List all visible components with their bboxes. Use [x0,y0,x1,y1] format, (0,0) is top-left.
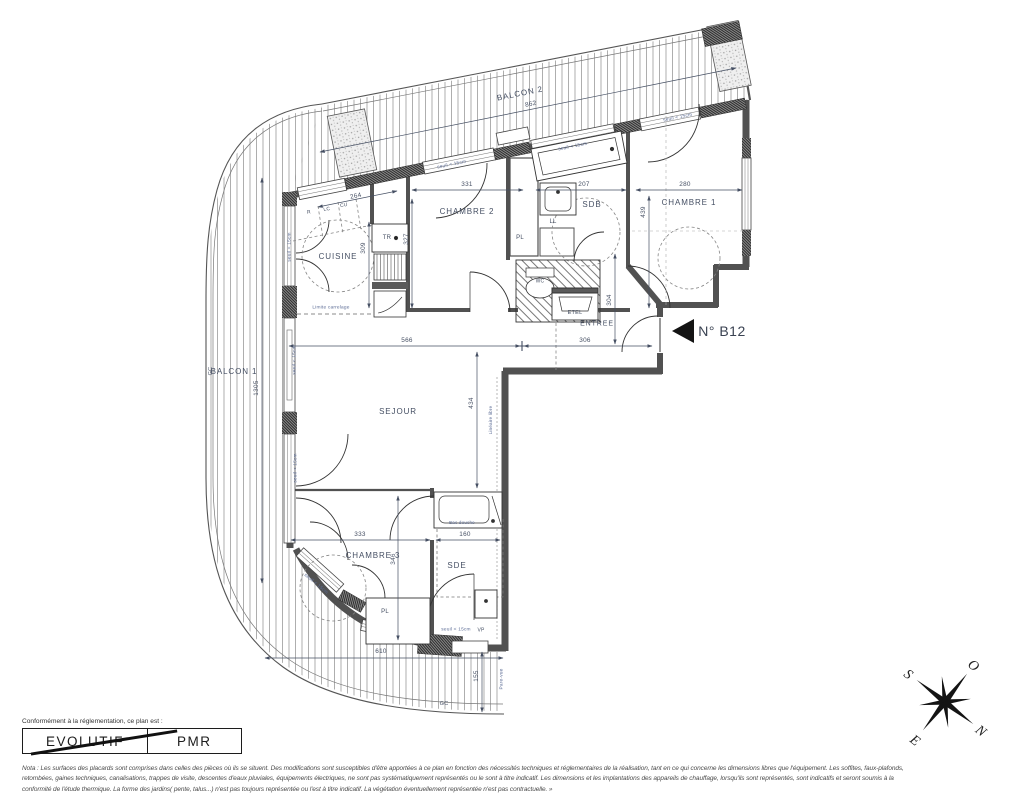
room-label-etel: ETEL [568,311,583,317]
compass-s: S [900,667,915,683]
compass-e: E [906,732,923,750]
nota-line-3: conformité de l'étude thermique. La form… [22,785,1012,795]
room-label-entree: ENTREE [580,321,614,328]
room-label-sdb: SDB [582,201,601,209]
room-label-sde: SDE [447,562,466,570]
dim-155: 155 [474,670,480,682]
room-label-chambre2: CHAMBRE 2 [440,208,495,216]
dim-304: 304 [607,294,613,306]
room-label-cuisine: CUISINE [319,253,358,261]
dim-346: 346 [391,553,397,565]
dim-280: 280 [679,182,691,188]
seuil-label-1: seuil < 15cm [289,232,294,261]
dim-439: 439 [641,206,647,218]
label-pl-hall: PL [516,235,524,241]
dim-1305: 1305 [254,380,260,395]
lineaire-libre-label: Linéaire libre [489,406,494,435]
room-label-chambre1: CHAMBRE 1 [662,199,717,207]
dim-331: 331 [461,182,473,188]
floor-plan-drawing: O E S N [0,0,1020,800]
dim-160: 160 [459,532,471,538]
bac-douche-label: Bac douche [449,521,475,526]
dim-207: 207 [578,182,590,188]
dim-333: 333 [354,532,366,538]
label-ll: LL [549,219,556,225]
dim-306: 306 [579,338,591,344]
label-pl-chambre3: PL [381,609,389,615]
pare-vue-label: Pare-vue [501,668,506,689]
legend-title: Conformément à la réglementation, ce pla… [22,718,242,725]
compass-o: O [964,657,981,675]
limite-carrelage-label: Limite carrelage [312,307,349,312]
nota-line-2: retombées, gaines techniques, canalisati… [22,774,1012,784]
nota-line-1: Nota : Les surfaces des placards sont co… [22,764,1012,774]
label-gc-left: GC [209,367,215,376]
seuil-label-7: seuil < 15cm [441,629,470,634]
label-wc: WC [536,280,545,285]
floor-plan-page: O E S N BALCON 2 BALCON 1 CUISINE CHAMBR… [0,0,1020,800]
compass-rose: O E S N [871,630,1018,779]
dim-566: 566 [401,338,413,344]
room-label-sejour: SEJOUR [379,408,417,416]
seuil-label-2: seuil < 15cm [294,345,299,374]
compass-n: N [971,722,989,741]
label-gc-bottom: GC [440,702,449,708]
dim-327: 327 [404,233,410,245]
seuil-label-3: seuil < 15cm [295,453,300,482]
dim-434: 434 [469,397,475,409]
room-label-balcon1: BALCON 1 [211,368,258,376]
label-r: R [307,210,312,216]
dim-610: 610 [375,649,387,655]
dim-309: 309 [361,242,367,254]
entrance-arrow-icon [672,319,694,343]
unit-number: N° B12 [698,324,746,338]
nota-text: Nota : Les surfaces des placards sont co… [22,764,1012,795]
label-vp: VP [477,629,484,634]
legend: Conformément à la réglementation, ce pla… [22,718,242,754]
label-tr: TR [383,235,391,241]
